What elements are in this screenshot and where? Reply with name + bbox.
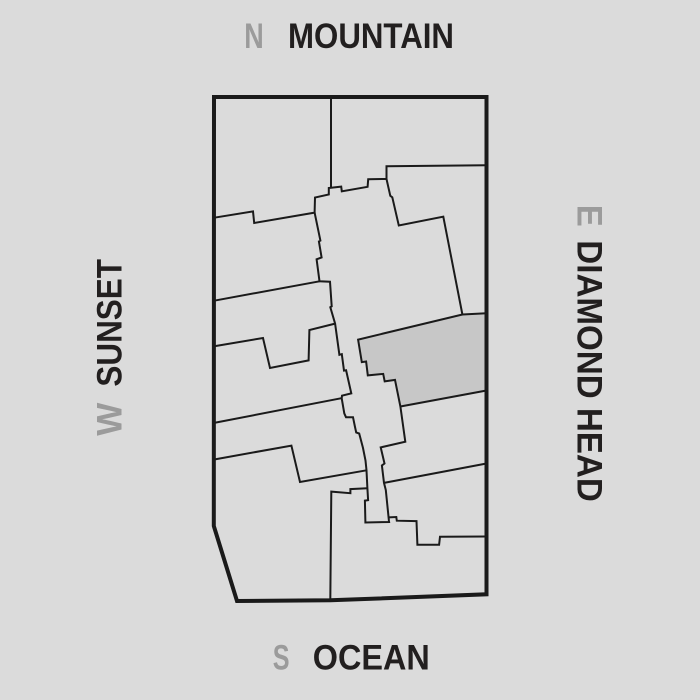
svg-text:DIAMOND HEAD: DIAMOND HEAD — [570, 240, 609, 502]
svg-text:N: N — [244, 17, 264, 56]
svg-text:OCEAN: OCEAN — [313, 639, 430, 678]
svg-text:W: W — [91, 403, 130, 436]
svg-text:SUNSET: SUNSET — [91, 259, 130, 387]
svg-text:MOUNTAIN: MOUNTAIN — [288, 17, 454, 56]
svg-text:E: E — [570, 205, 609, 227]
svg-text:S: S — [273, 639, 290, 678]
